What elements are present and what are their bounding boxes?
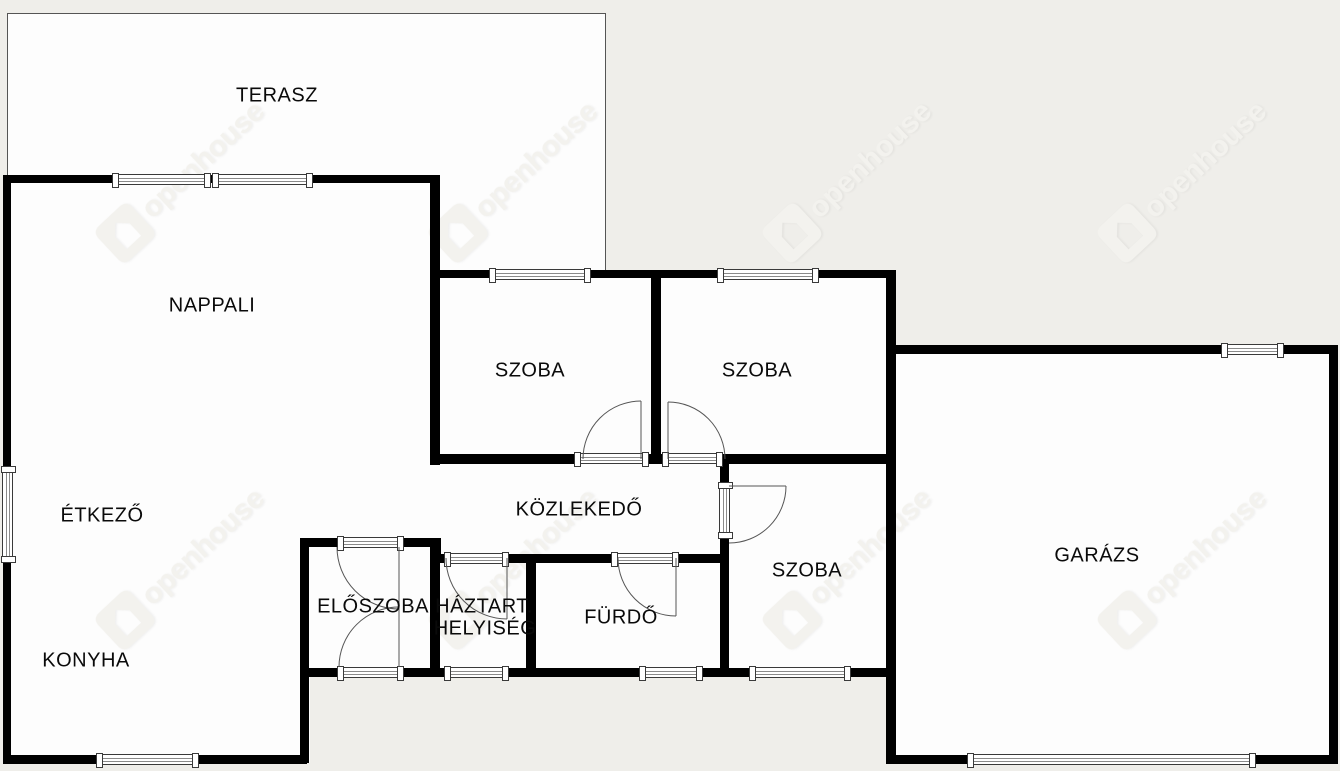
door-sill-furdo bbox=[612, 553, 678, 564]
wall-segment-26 bbox=[3, 755, 97, 764]
window-garazs-top bbox=[1222, 344, 1283, 355]
room-label-szoba-1: SZOBA bbox=[495, 360, 565, 383]
door-sill-haztart bbox=[445, 553, 508, 564]
wall-segment-8 bbox=[648, 454, 663, 464]
openhouse-logo-icon bbox=[1094, 200, 1159, 265]
window-nappali-terasz-b bbox=[213, 174, 312, 185]
room-label-nappali: NAPPALI bbox=[169, 295, 256, 318]
watermark-text: openhouse bbox=[802, 95, 939, 226]
window-haztart-bottom bbox=[445, 667, 508, 678]
watermark-text: openhouse bbox=[1137, 95, 1274, 226]
wall-segment-32 bbox=[1255, 755, 1337, 764]
openhouse-logo-icon bbox=[759, 200, 824, 265]
wall-segment-18 bbox=[300, 538, 309, 763]
wall-segment-23 bbox=[508, 668, 640, 677]
wall-segment-3 bbox=[430, 175, 440, 465]
openhouse-watermark-4: openhouse bbox=[1094, 90, 1277, 265]
door-sill-eloszoba-top bbox=[338, 537, 403, 548]
room-label-haztart-line2: HELYISÉG bbox=[434, 618, 537, 641]
door-sill-szoba2 bbox=[663, 453, 722, 464]
room-label-furdo: FÜRDŐ bbox=[584, 607, 658, 630]
wall-segment-22 bbox=[403, 668, 445, 677]
wall-segment-27 bbox=[198, 755, 307, 764]
wall-segment-9 bbox=[722, 454, 896, 464]
door-sill-eloszoba-entry bbox=[338, 667, 403, 678]
window-konyha-bottom bbox=[97, 754, 198, 765]
openhouse-watermark-3: openhouse bbox=[759, 90, 942, 265]
wall-segment-6 bbox=[886, 270, 896, 763]
room-label-konyha: KONYHA bbox=[42, 650, 129, 673]
wall-segment-30 bbox=[1329, 345, 1338, 764]
window-etkezo-left bbox=[2, 467, 13, 562]
window-furdo-bottom bbox=[640, 667, 702, 678]
wall-segment-24 bbox=[702, 668, 750, 677]
window-szoba3-bottom bbox=[750, 667, 850, 678]
room-label-haztart-line1: HÁZTART. bbox=[435, 596, 533, 619]
garage-door-sill bbox=[968, 754, 1255, 765]
room-label-szoba-3: SZOBA bbox=[772, 560, 842, 583]
house-interior-1 bbox=[3, 175, 310, 763]
room-label-kozlekedo: KÖZLEKEDŐ bbox=[516, 499, 643, 522]
door-sill-szoba1 bbox=[575, 453, 648, 464]
room-label-terasz: TERASZ bbox=[236, 85, 318, 108]
door-sill-szoba3 bbox=[719, 483, 730, 538]
window-szoba2-top bbox=[718, 269, 818, 280]
window-szoba1-terasz bbox=[490, 269, 590, 280]
room-label-eloszoba: ELŐSZOBA bbox=[317, 596, 429, 619]
room-label-etkezo: ÉTKEZŐ bbox=[60, 505, 143, 528]
room-label-garazs: GARÁZS bbox=[1054, 545, 1139, 568]
wall-segment-13 bbox=[508, 554, 612, 563]
room-label-szoba-2: SZOBA bbox=[722, 360, 792, 383]
wall-segment-28 bbox=[886, 345, 1222, 354]
window-nappali-terasz-a bbox=[113, 174, 210, 185]
wall-segment-5 bbox=[651, 278, 661, 455]
floorplan-canvas: openhouseopenhouseopenhouseopenhouseopen… bbox=[0, 0, 1340, 771]
wall-segment-7 bbox=[430, 454, 575, 464]
wall-segment-31 bbox=[886, 755, 968, 764]
wall-segment-25 bbox=[850, 668, 896, 677]
wall-segment-14 bbox=[678, 554, 729, 563]
wall-segment-21 bbox=[300, 668, 338, 677]
